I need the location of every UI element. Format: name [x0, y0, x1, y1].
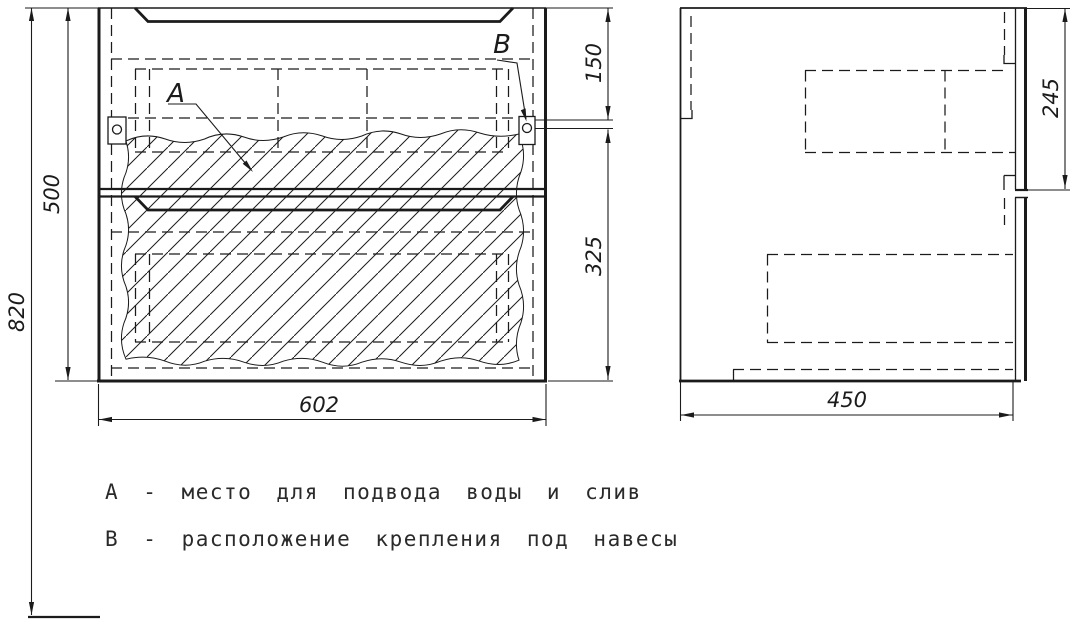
- technical-drawing: А В: [0, 0, 1077, 628]
- side-outline: [679, 8, 1028, 381]
- dim-label-325: 325: [582, 236, 606, 276]
- dim-label-245: 245: [1039, 78, 1063, 118]
- dim-top-to-hanger: 150: [582, 8, 611, 120]
- callout-a-label: А: [165, 79, 185, 109]
- dim-label-450: 450: [827, 388, 867, 412]
- hatch-region: [121, 130, 523, 366]
- dim-label-500: 500: [40, 174, 64, 214]
- legend-line-a: А - место для подвода воды и слив: [105, 480, 642, 504]
- dim-label-602: 602: [299, 393, 339, 417]
- callout-b-label: В: [493, 30, 511, 60]
- hanger-hole-right: [523, 124, 532, 133]
- legend: А - место для подвода воды и слив В - ра…: [105, 480, 678, 551]
- dim-label-820: 820: [5, 292, 29, 332]
- side-view: [679, 8, 1028, 381]
- hanger-plate-right: [519, 117, 535, 145]
- drawing-canvas: А В: [0, 0, 1077, 628]
- hanger-hole-left: [113, 125, 122, 134]
- top-drawer-groove: [135, 8, 513, 22]
- dim-hanger-to-bottom: 325: [582, 130, 611, 381]
- dim-hanger-zone: 245: [1039, 8, 1068, 189]
- side-hidden-lines: [691, 12, 1015, 381]
- dim-cabinet-height: 500: [40, 8, 71, 380]
- dim-cabinet-depth: 450: [680, 388, 1013, 418]
- dim-overall-height: 820: [5, 8, 100, 617]
- front-view: А В: [97, 8, 547, 381]
- legend-line-b: В - расположение крепления под навесы: [105, 527, 678, 551]
- dim-label-150: 150: [582, 43, 606, 83]
- hanger-plate-left: [108, 117, 126, 144]
- dim-cabinet-width: 602: [98, 393, 546, 422]
